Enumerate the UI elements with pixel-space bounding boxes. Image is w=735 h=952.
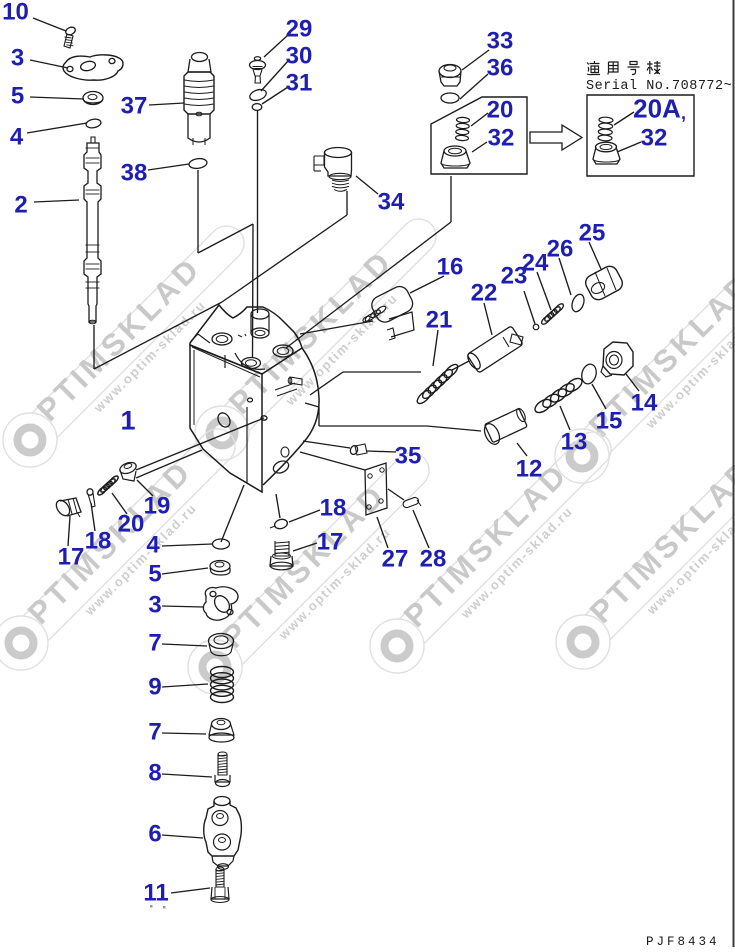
svg-text:PJF8434: PJF8434 xyxy=(646,935,720,947)
svg-text:5: 5 xyxy=(11,83,24,110)
svg-text:20A: 20A xyxy=(633,93,681,123)
svg-text:10: 10 xyxy=(2,0,29,26)
svg-text:27: 27 xyxy=(382,546,409,573)
svg-text:29: 29 xyxy=(286,16,313,43)
svg-text:21: 21 xyxy=(426,307,453,334)
svg-text:7: 7 xyxy=(148,630,161,657)
svg-text:8: 8 xyxy=(148,760,161,787)
svg-text:19: 19 xyxy=(144,493,171,520)
svg-text:6: 6 xyxy=(148,821,161,848)
svg-text:20: 20 xyxy=(487,97,514,124)
svg-text:36: 36 xyxy=(487,55,514,82)
svg-text:13: 13 xyxy=(561,429,588,456)
svg-text:14: 14 xyxy=(631,390,658,417)
svg-text:30: 30 xyxy=(286,43,313,70)
svg-text:1: 1 xyxy=(120,406,135,436)
svg-text:31: 31 xyxy=(286,70,313,97)
svg-text:28: 28 xyxy=(420,546,447,573)
svg-text:17: 17 xyxy=(317,529,344,556)
svg-text:15: 15 xyxy=(596,408,623,435)
svg-text:34: 34 xyxy=(378,189,405,216)
svg-text:5: 5 xyxy=(148,561,161,588)
svg-text:32: 32 xyxy=(488,125,515,152)
svg-text:16: 16 xyxy=(437,254,464,281)
svg-text:35: 35 xyxy=(395,443,422,470)
svg-text:18: 18 xyxy=(85,528,112,555)
svg-text:33: 33 xyxy=(487,28,514,55)
svg-text:25: 25 xyxy=(579,220,606,247)
svg-text:38: 38 xyxy=(121,160,148,187)
svg-text:26: 26 xyxy=(547,236,574,263)
svg-text:18: 18 xyxy=(320,495,347,522)
svg-text:12: 12 xyxy=(516,456,543,483)
svg-text:37: 37 xyxy=(121,93,148,120)
svg-text:9: 9 xyxy=(148,674,161,701)
svg-text:7: 7 xyxy=(148,719,161,746)
svg-text:4: 4 xyxy=(10,124,24,151)
svg-text:11: 11 xyxy=(143,880,168,907)
svg-text:24: 24 xyxy=(522,250,549,277)
svg-text:32: 32 xyxy=(641,125,668,152)
svg-text:3: 3 xyxy=(148,592,161,619)
svg-text:2: 2 xyxy=(14,192,27,219)
svg-text:20: 20 xyxy=(118,511,145,538)
svg-text:3: 3 xyxy=(11,45,24,72)
svg-text:,: , xyxy=(681,103,686,123)
svg-text:22: 22 xyxy=(471,280,498,307)
svg-text:17: 17 xyxy=(58,544,85,571)
svg-text:4: 4 xyxy=(146,532,160,559)
svg-text:Serial No.708772~: Serial No.708772~ xyxy=(586,79,732,94)
